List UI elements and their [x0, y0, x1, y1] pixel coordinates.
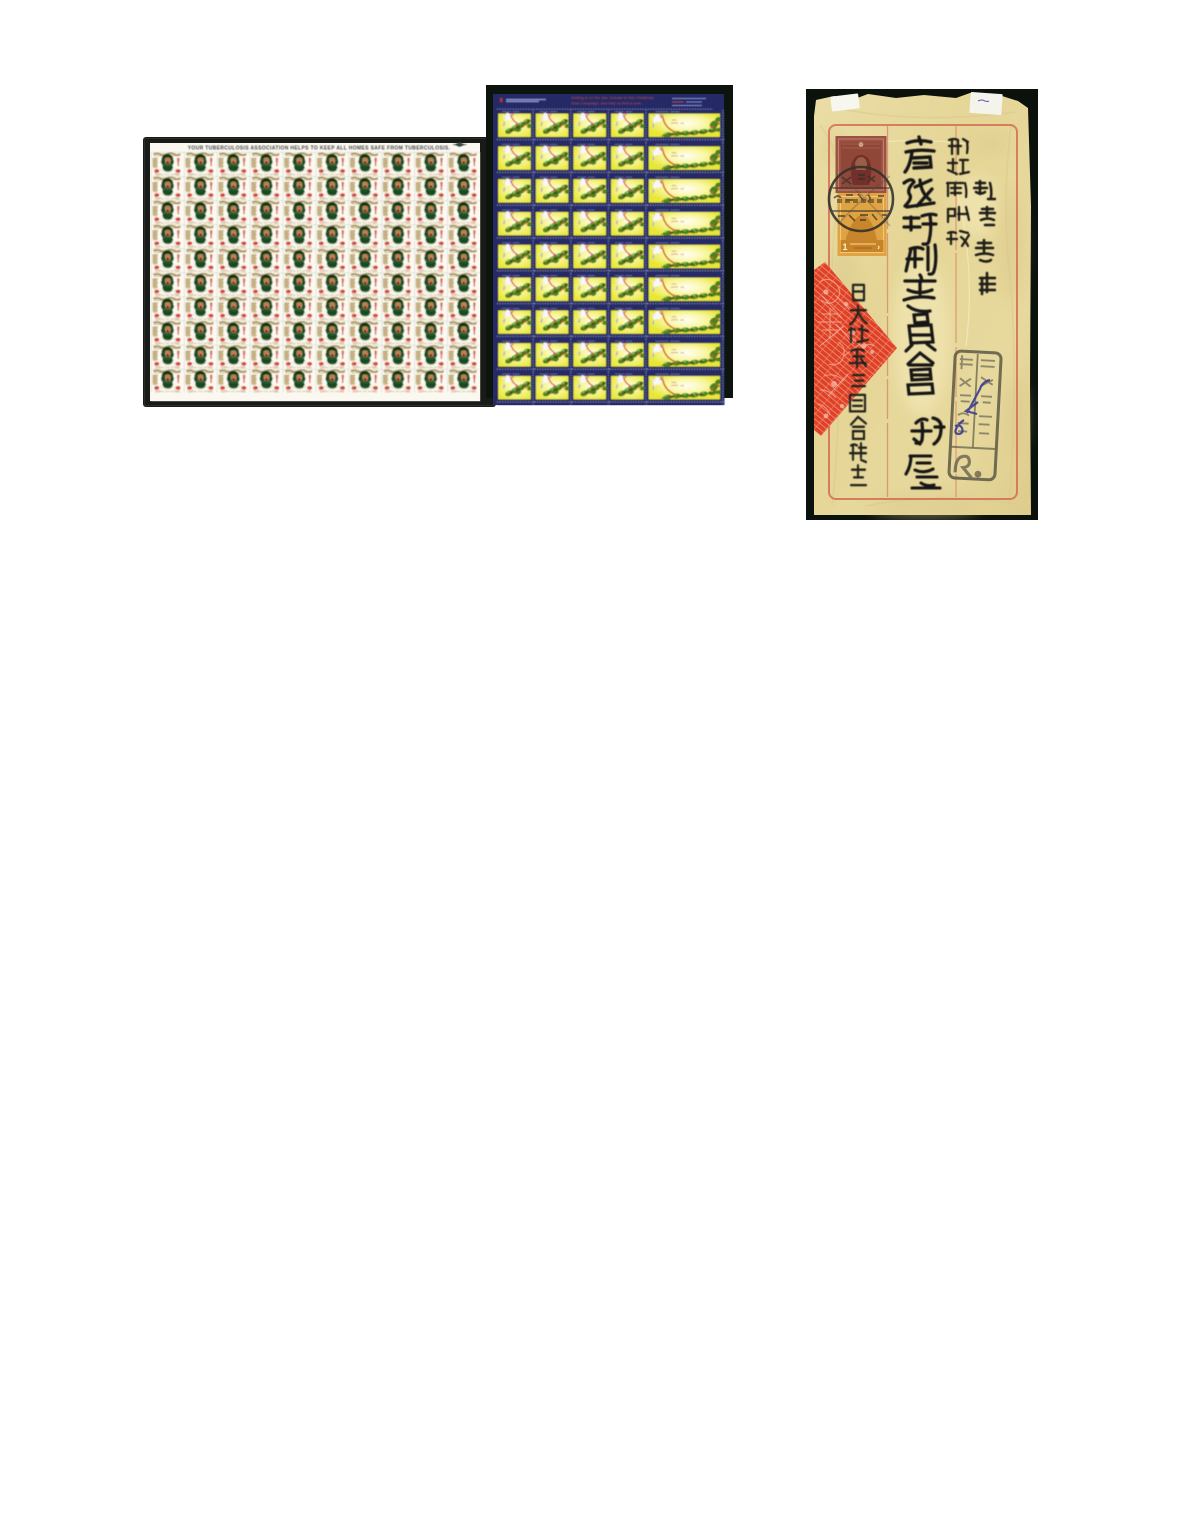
svg-text:Seal Campaign, and help us fin: Seal Campaign, and help us find a cure. [571, 100, 642, 105]
svg-text:YOUR TUBERCULOSIS ASSOCIATIO: YOUR TUBERCULOSIS ASSOCIATION HELPS TO K… [188, 146, 451, 152]
svg-text:1: 1 [843, 242, 848, 252]
